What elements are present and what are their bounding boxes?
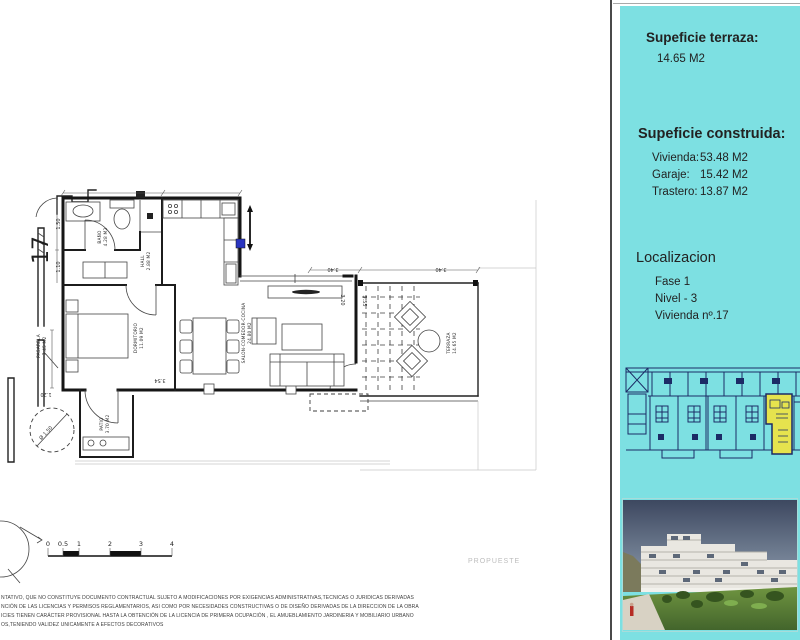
terraza-area-label: 14.65 M2 bbox=[452, 332, 458, 354]
bano-area-label: 4.28 M2 bbox=[103, 228, 109, 247]
bathroom bbox=[63, 198, 162, 250]
site-plan-minimap bbox=[620, 358, 800, 466]
armchair bbox=[252, 318, 276, 344]
dining-table bbox=[193, 318, 226, 374]
nightstand bbox=[66, 360, 78, 372]
patio-area-label: 3.70 M2 bbox=[105, 415, 111, 434]
pasarela-name-label: PASARELA bbox=[36, 334, 42, 358]
location-title: Localizacion bbox=[636, 250, 716, 266]
built-surface-title: Supeficie construida: bbox=[638, 126, 785, 142]
chair bbox=[180, 340, 192, 353]
chair bbox=[227, 340, 239, 353]
dim-terrace-height: 3.55 bbox=[361, 295, 367, 306]
scale-tick-4: 4 bbox=[170, 540, 174, 548]
hall-name-label: HALL bbox=[140, 255, 146, 267]
info-sidebar: Supeficie terraza: 14.65 M2 Supeficie co… bbox=[620, 6, 800, 640]
dim-top-left: 3.40 bbox=[327, 266, 338, 272]
page-divider-line bbox=[610, 0, 612, 640]
terraza-name-label: TERRAZA bbox=[446, 332, 452, 354]
dormitorio-name-label: DORMITORIO bbox=[133, 322, 139, 353]
disclaimer: NTATIVO, QUE NO CONSTITUYE DOCUMENTO CON… bbox=[1, 594, 401, 630]
plan-sheet-page: 17 PASARELA 7.45 M2 1.20 1.50 1.10 bbox=[0, 0, 800, 640]
terrace-table bbox=[418, 330, 440, 352]
floor-plan-drawing: 17 PASARELA 7.45 M2 1.20 1.50 1.10 bbox=[0, 0, 612, 640]
patio bbox=[30, 390, 390, 464]
terrace bbox=[310, 200, 536, 470]
unit-number-label: 17 bbox=[29, 236, 54, 264]
scale-tick-3: 3 bbox=[139, 540, 143, 548]
built-row-value: 13.87 M2 bbox=[700, 186, 748, 198]
highlighted-unit bbox=[766, 394, 792, 454]
tv bbox=[292, 290, 320, 294]
disclaimer-line: OS,TENIENDO VALIDEZ UNICAMENTE A EFECTOS… bbox=[1, 621, 401, 630]
toilet-tank bbox=[110, 200, 134, 208]
built-row-label: Garaje: bbox=[652, 169, 700, 181]
shower-drain bbox=[147, 213, 153, 219]
built-row-value: 15.42 M2 bbox=[700, 169, 748, 181]
salon-name-label: SALON-COMEDOR-COCINA bbox=[241, 303, 247, 364]
wall-vent bbox=[136, 191, 145, 198]
disclaimer-line: ICIES TIENEN CARÁCTER PROVISIONAL HASTA … bbox=[1, 612, 401, 621]
built-row-label: Vivienda: bbox=[652, 152, 700, 164]
chair bbox=[227, 360, 239, 373]
disclaimer-line: NTATIVO, QUE NO CONSTITUYE DOCUMENTO CON… bbox=[1, 594, 401, 603]
bano-name-label: BAÑO bbox=[96, 230, 103, 244]
scale-bar: 0 0.5 1 2 3 4 bbox=[46, 540, 174, 556]
pasarela-area-label: 7.45 M2 bbox=[42, 337, 48, 356]
location-nivel: Nivel - 3 bbox=[655, 293, 697, 305]
electrical-panel-marker bbox=[236, 239, 245, 248]
nightstand bbox=[66, 300, 78, 312]
dormitorio-area-label: 11.09 M2 bbox=[139, 327, 145, 349]
toilet-bowl bbox=[114, 209, 130, 229]
unit-walls bbox=[63, 191, 356, 423]
dining-set bbox=[180, 318, 239, 374]
built-row-trastero: Trastero: 13.87 M2 bbox=[652, 186, 792, 198]
chair bbox=[180, 360, 192, 373]
scale-tick-05: 0.5 bbox=[58, 540, 68, 548]
chair bbox=[180, 320, 192, 333]
hall-area-label: 2.88 M2 bbox=[146, 252, 152, 271]
disclaimer-line: NCIÓN DE LAS LICENCIAS Y PERMISOS REGLAM… bbox=[1, 603, 401, 612]
dim-bath: 1.50 bbox=[56, 218, 62, 229]
dim-walkway: 1.20 bbox=[40, 391, 51, 397]
living-room bbox=[252, 286, 344, 386]
bedroom bbox=[63, 285, 175, 390]
location-fase: Fase 1 bbox=[655, 276, 690, 288]
person-figure bbox=[630, 603, 634, 616]
patio-name-label: PATIO bbox=[99, 417, 105, 431]
scale-tick-0: 0 bbox=[46, 540, 50, 548]
terrace-surface-title: Supeficie terraza: bbox=[646, 30, 759, 45]
sidebar-top-rule bbox=[613, 3, 800, 4]
dim-bedroom-width: 3.54 bbox=[154, 377, 165, 383]
terrace-surface-value: 14.65 M2 bbox=[657, 53, 705, 65]
chair bbox=[227, 320, 239, 333]
terrace-chair bbox=[394, 301, 425, 332]
dim-hall: 1.10 bbox=[56, 261, 62, 272]
bed bbox=[66, 314, 128, 358]
dim-turning-circle: Ø 1.50 bbox=[38, 424, 54, 441]
dim-living-height: 3.20 bbox=[339, 294, 345, 305]
built-row-garaje: Garaje: 15.42 M2 bbox=[652, 169, 792, 181]
location-vivienda: Vivienda nº.17 bbox=[655, 310, 729, 322]
dim-top-right: 3.40 bbox=[435, 266, 446, 272]
compass-icon bbox=[0, 521, 42, 583]
watermark-text: PROPUESTE bbox=[468, 558, 520, 565]
building-photo bbox=[622, 498, 798, 632]
scale-tick-2: 2 bbox=[108, 540, 112, 548]
scale-tick-1: 1 bbox=[77, 540, 81, 548]
built-row-vivienda: Vivienda: 53.48 M2 bbox=[652, 152, 792, 164]
salon-area-label: 24.80 M2 bbox=[247, 322, 253, 344]
coffee-table bbox=[282, 324, 322, 350]
built-row-value: 53.48 M2 bbox=[700, 152, 748, 164]
built-row-label: Trastero: bbox=[652, 186, 700, 198]
